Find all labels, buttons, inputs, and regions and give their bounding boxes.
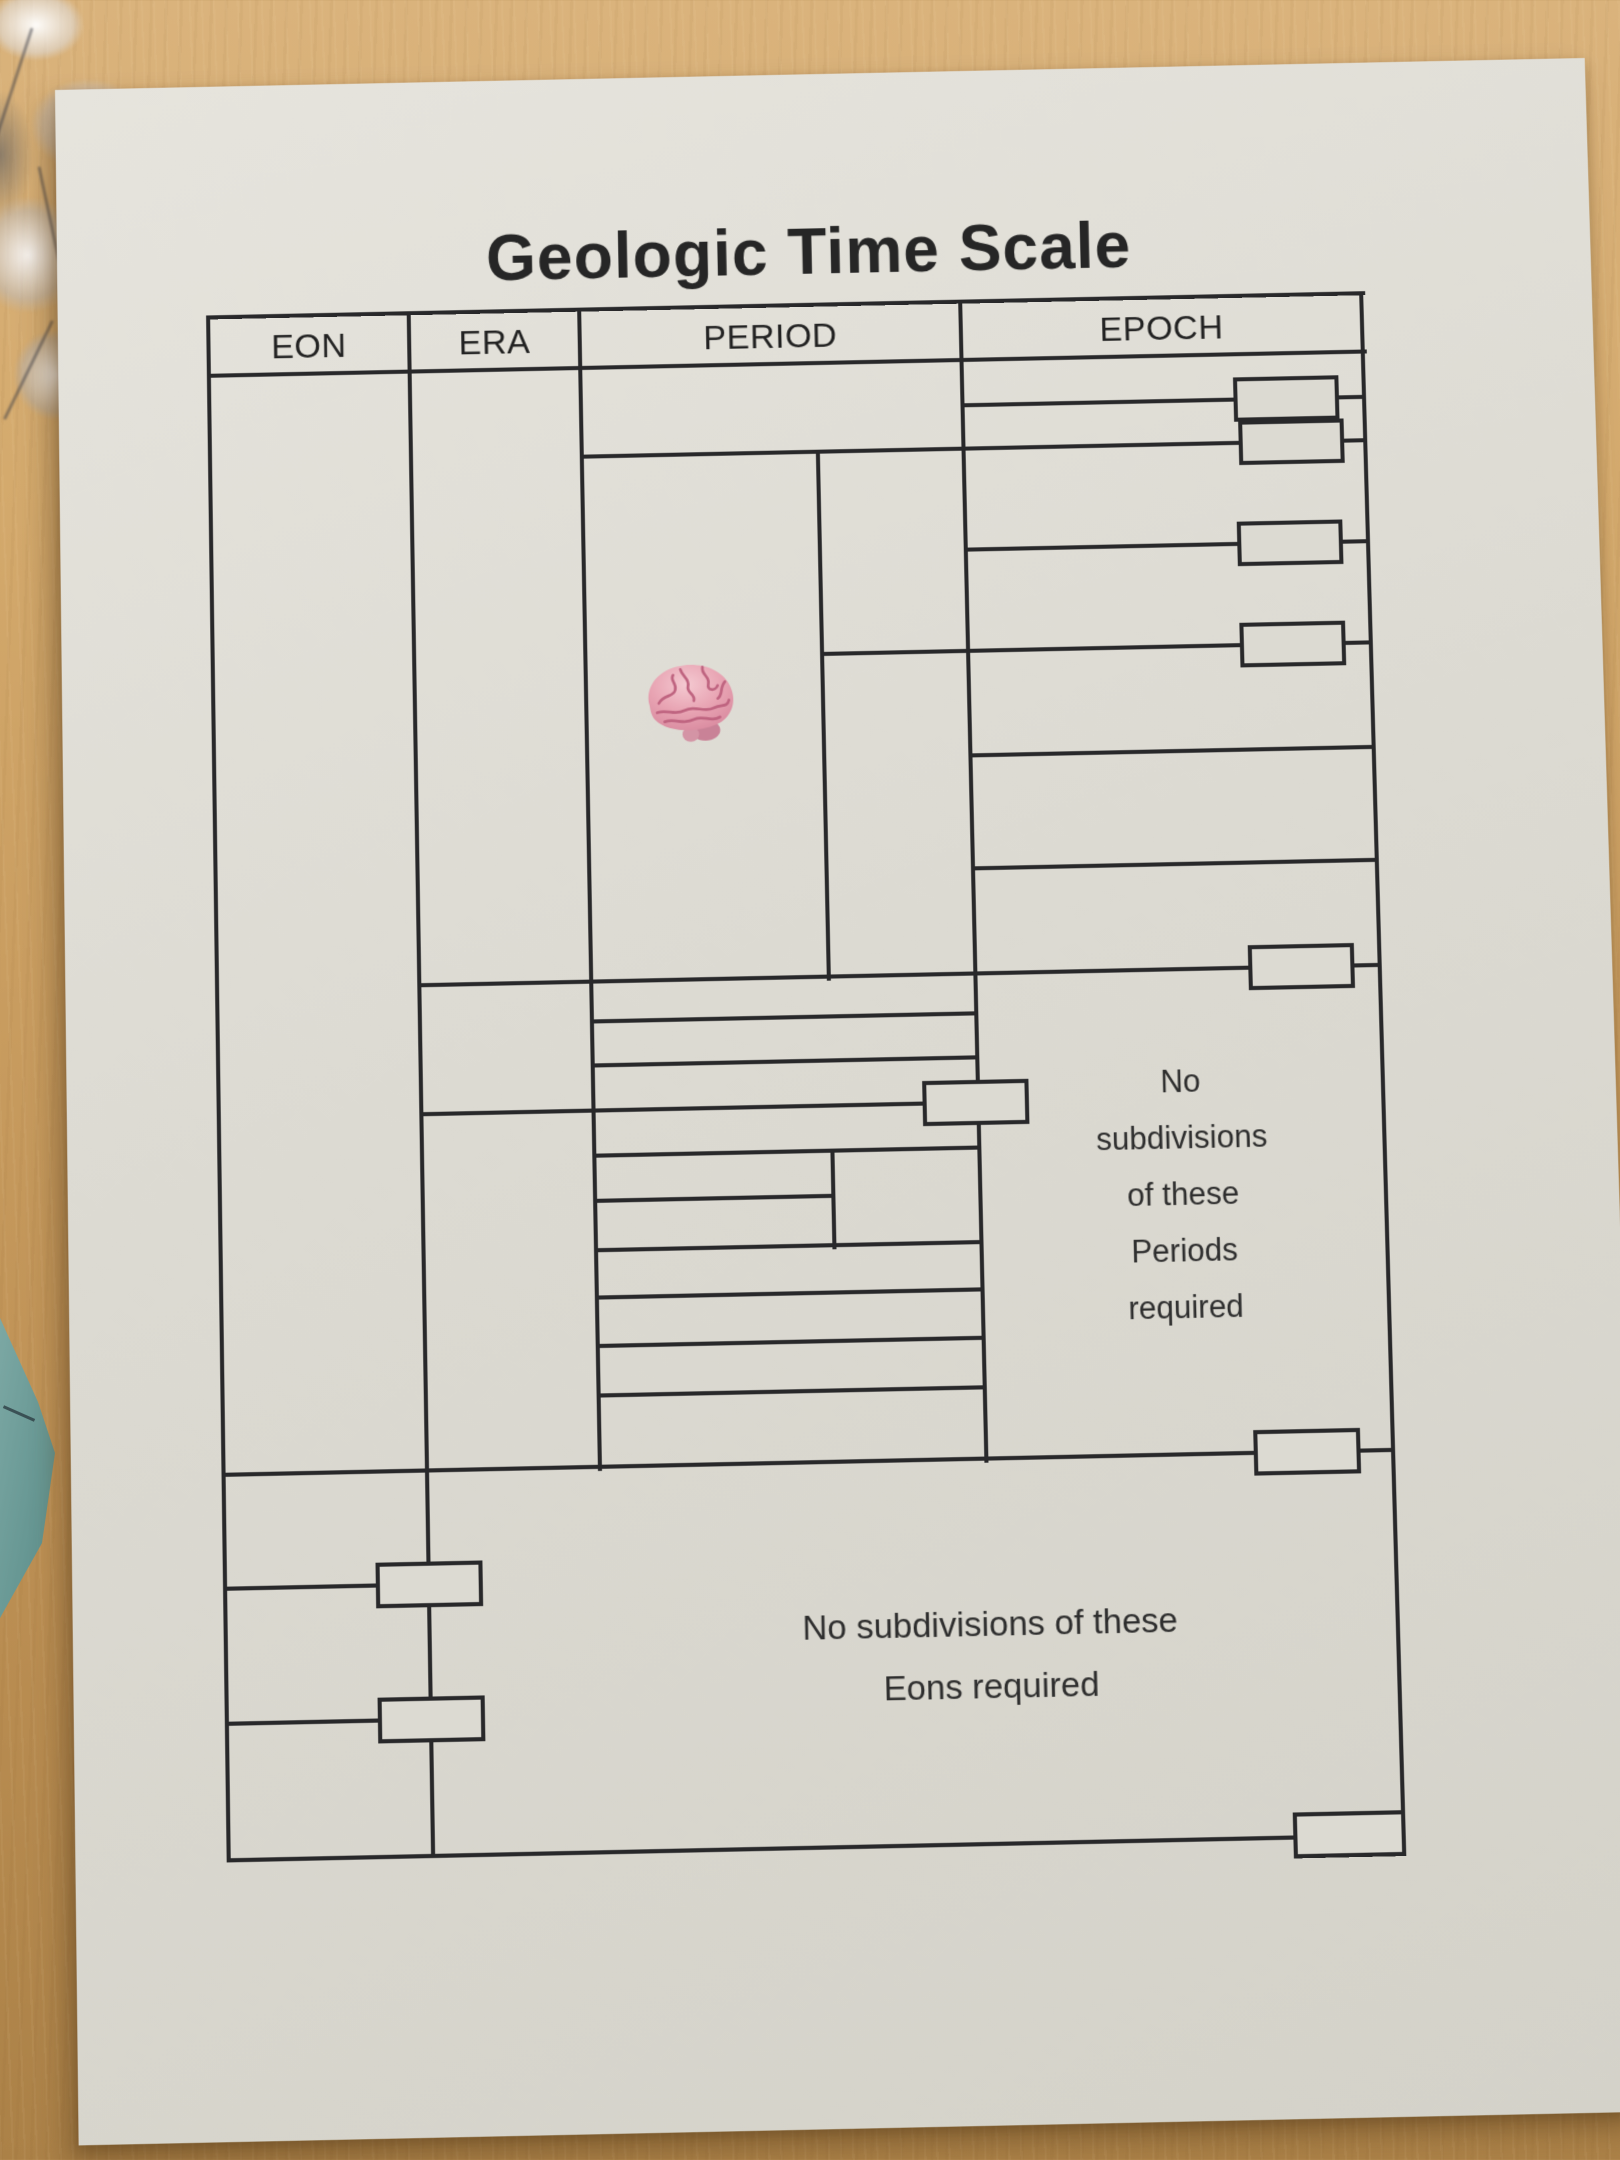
- blank-box-paleocene-boundary: [1248, 943, 1355, 990]
- line-archean-bottom: [225, 1718, 384, 1726]
- header-eon: EON: [208, 321, 409, 371]
- blank-box-archean-boundary: [378, 1695, 486, 1743]
- line-pliocene-miocene: [964, 542, 1242, 552]
- line-ordovician-bottom: [597, 1385, 987, 1397]
- connector-cambrian: [1358, 1448, 1395, 1453]
- line-proterozoic-bottom: [223, 1583, 382, 1591]
- divider-period-subcolumn: [816, 452, 831, 981]
- blank-box-holocene-boundary: [1233, 375, 1340, 422]
- blank-box-pliocene-boundary: [1237, 519, 1344, 566]
- line-devonian-bottom: [595, 1287, 985, 1299]
- connector-paleocene: [1352, 963, 1381, 968]
- line-carboniferous-bottom: [594, 1240, 984, 1252]
- line-neogene-bottom: [820, 643, 1244, 656]
- note-no-eon-subdivisions: No subdivisions of these Eons required: [551, 1584, 1430, 1727]
- line-holocene-pleistocene: [960, 398, 1237, 408]
- connector-pliocene: [1341, 539, 1370, 544]
- line-silurian-bottom: [596, 1336, 986, 1348]
- line-pennsylvanian-bottom: [593, 1194, 835, 1203]
- blank-box-pleistocene-boundary: [1238, 418, 1345, 465]
- line-eocene-bottom: [971, 858, 1379, 871]
- photo-of-worksheet-on-desk: { "scene": { "desk_color": "#c99d60", "w…: [0, 0, 1620, 2160]
- line-jurassic-bottom: [591, 1055, 980, 1067]
- border-left: [206, 315, 231, 1862]
- blank-box-cambrian-boundary: [1253, 1428, 1361, 1476]
- worksheet-paper: Geologic Time Scale EON ERA PERIOD EPOCH: [55, 58, 1620, 2145]
- header-era: ERA: [409, 318, 580, 368]
- blank-box-mesozoic-boundary: [922, 1079, 1029, 1126]
- divider-carboniferous: [830, 1151, 836, 1250]
- note-no-period-subdivisions: No subdivisions of these Periods require…: [977, 1049, 1390, 1340]
- page-title: Geologic Time Scale: [227, 202, 1391, 301]
- teal-paper: [0, 1318, 60, 1618]
- line-quaternary-bottom: [580, 441, 1239, 459]
- header-epoch: EPOCH: [960, 301, 1362, 356]
- connector-holocene: [1337, 395, 1366, 400]
- plastic-crease: [0, 27, 33, 142]
- connector-miocene: [1344, 640, 1373, 645]
- line-oligocene-bottom: [968, 745, 1375, 758]
- header-period: PERIOD: [579, 310, 961, 364]
- blank-box-table-bottom: [1293, 1810, 1407, 1858]
- plastic-crease: [3, 320, 54, 420]
- line-mesozoic-bottom: [419, 1101, 926, 1116]
- blank-box-proterozoic-boundary: [375, 1560, 483, 1608]
- connector-pleistocene: [1342, 438, 1367, 443]
- line-phanerozoic-bottom: [222, 1451, 1260, 1477]
- divider-eon-era: [407, 311, 436, 1858]
- line-permian-bottom: [592, 1145, 981, 1157]
- line-cretaceous-bottom: [590, 1011, 978, 1023]
- line-cenozoic-bottom: [417, 966, 1252, 988]
- brain-emoji-sticker: [636, 651, 749, 750]
- blank-box-miocene-boundary: [1239, 621, 1346, 668]
- border-bottom: [227, 1835, 1298, 1862]
